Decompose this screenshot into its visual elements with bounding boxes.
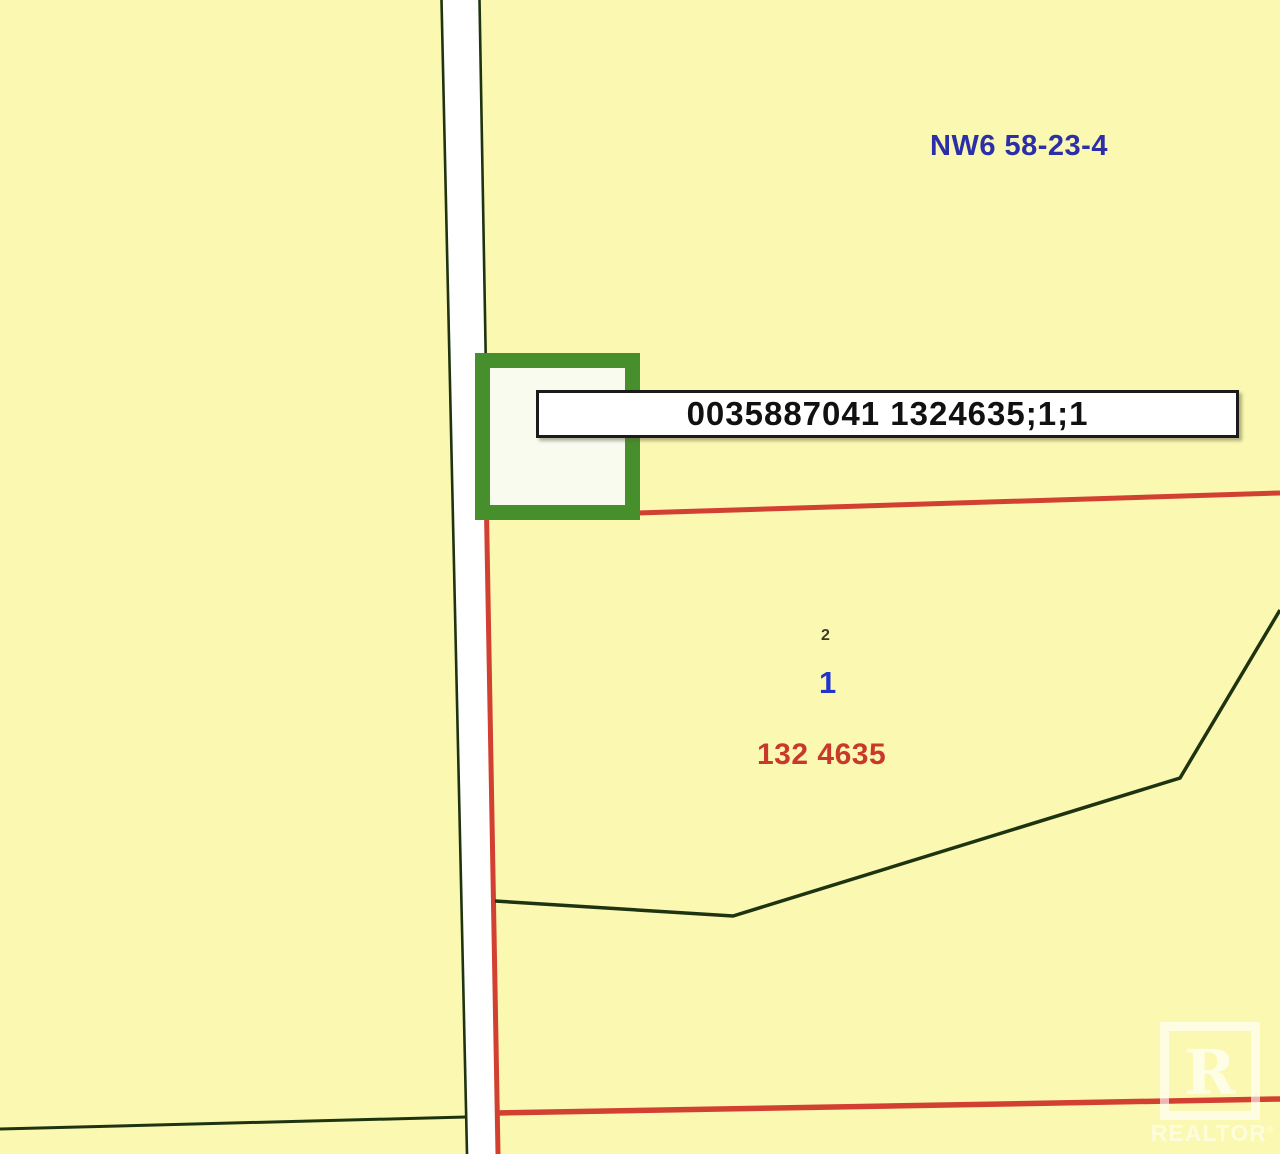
parcel-label: 0035887041 1324635;1;1 <box>687 395 1089 433</box>
road-surface <box>441 0 499 1154</box>
parcel-map-layer <box>0 0 1280 1154</box>
lot-small-label: 2 <box>821 627 830 645</box>
map-canvas[interactable]: 0035887041 1324635;1;1 NW6 58-23-4 2 1 1… <box>0 0 1280 1154</box>
inner-boundary-polyline <box>495 610 1280 916</box>
township-label: NW6 58-23-4 <box>930 130 1108 163</box>
lot-number-label: 1 <box>819 665 836 701</box>
parcel-south-boundary-red-line <box>497 1099 1280 1113</box>
plan-number-label: 132 4635 <box>757 738 886 772</box>
southwest-boundary-line <box>0 1117 466 1129</box>
parcel-label-box: 0035887041 1324635;1;1 <box>536 390 1239 438</box>
parcel-north-boundary-red-line <box>637 493 1280 513</box>
